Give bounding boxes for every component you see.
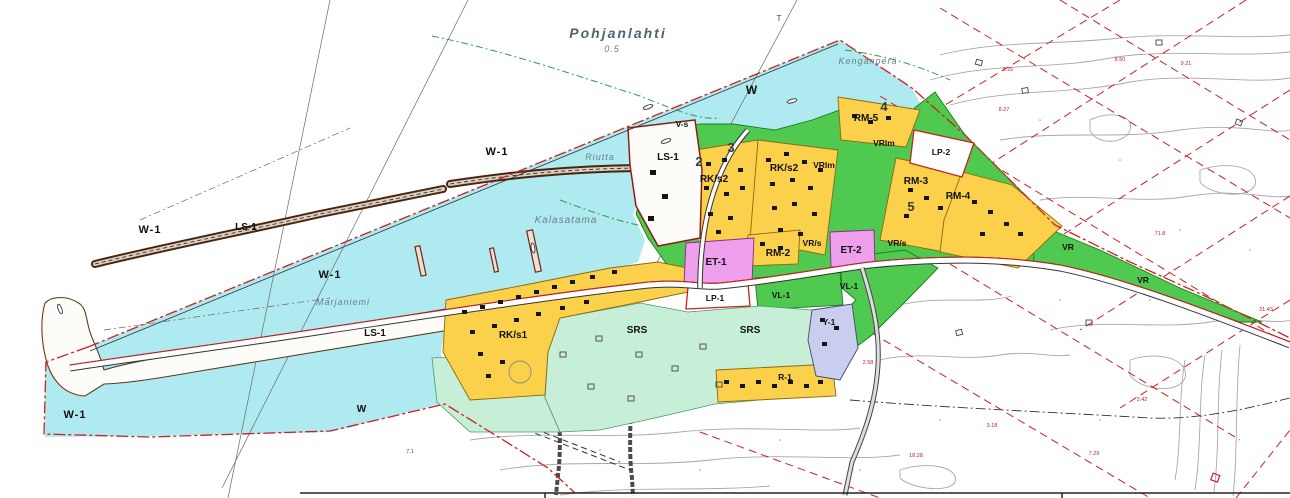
zoning-plan-map[interactable]: Pohjanlahti 0.5 T Kengänperä Riutta Kala… (0, 0, 1290, 498)
zone-label-rm3: RM-3 (904, 176, 929, 187)
zone-label-rks2: RK/s2 (700, 174, 729, 185)
survey-number: 3.18 (987, 423, 998, 429)
survey-mark-label: T (777, 14, 782, 23)
zone-label-y1: Y-1 (823, 317, 836, 327)
survey-number: 9.25 (1003, 67, 1014, 73)
zone-label-vrlm: VRlm (873, 138, 895, 148)
water-zone-label-w1: W-1 (64, 409, 87, 421)
zone-label-rks1: RK/s1 (499, 330, 528, 341)
place-riutta: Riutta (585, 152, 615, 162)
sea-name-label: Pohjanlahti (569, 25, 666, 41)
zone-label-vr: VR (1062, 242, 1074, 252)
survey-number: 71.8 (1155, 231, 1166, 237)
zone-label-vl1: VL-1 (772, 290, 791, 300)
block-number: 4 (880, 99, 888, 114)
zone-label-vs: V-s (676, 119, 689, 129)
zone-label-et1: ET-1 (705, 257, 727, 268)
place-kenkapera: Kengänperä (838, 56, 897, 66)
zone-label-vrlm: VRlm (813, 160, 835, 170)
zone-label-r1: R-1 (778, 372, 792, 382)
zone-label-ls1: LS-1 (364, 328, 386, 339)
water-zone-label-w1: W-1 (139, 224, 162, 236)
water-zone-label-w1: W-1 (486, 146, 509, 158)
zone-label-vr: VR (1137, 275, 1149, 285)
survey-number: 21.43 (1259, 307, 1273, 313)
survey-number: 7.29 (1089, 451, 1100, 457)
survey-number: 8.50 (1115, 57, 1126, 63)
zone-label-rm5: RM-5 (854, 113, 879, 124)
zone-label-ls1: LS-1 (235, 222, 257, 233)
sea-depth-label: 0.5 (604, 44, 620, 54)
block-number: 5 (907, 199, 914, 214)
zone-label-vl1: VL-1 (840, 281, 859, 291)
block-number: 2 (695, 154, 702, 169)
block-number: 3 (727, 140, 734, 155)
water-zone-label-w: W (746, 83, 758, 97)
zone-label-rm4: RM-4 (946, 191, 971, 202)
survey-number: 3.42 (1137, 397, 1148, 403)
zone-label-et2: ET-2 (840, 245, 862, 256)
zone-label-lp2: LP-2 (932, 147, 951, 157)
map-canvas[interactable]: Pohjanlahti 0.5 T Kengänperä Riutta Kala… (0, 0, 1290, 498)
zone-label-vrs: VR/s (803, 238, 822, 248)
water-zone-label-w1: W-1 (319, 269, 342, 281)
water-zone-label-w: W (357, 404, 367, 415)
survey-number: 8.27 (999, 107, 1010, 113)
zone-label-rm2: RM-2 (766, 248, 791, 259)
zone-label-srs: SRS (627, 325, 648, 336)
place-marjaniemi: Marjaniemi (316, 297, 370, 307)
survey-number: 18.28 (909, 453, 923, 459)
zone-label-rks2: RK/s2 (770, 163, 799, 174)
survey-number: 7.1 (406, 449, 414, 455)
zone-label-srs: SRS (740, 325, 761, 336)
zone-label-lp1: LP-1 (706, 293, 725, 303)
zone-label-ls1: LS-1 (657, 152, 679, 163)
zone-label-vrs: VR/s (888, 238, 907, 248)
survey-number: 2.58 (863, 360, 874, 366)
survey-number: 9.21 (1181, 61, 1192, 67)
place-kalasatama: Kalasatama (535, 215, 598, 226)
